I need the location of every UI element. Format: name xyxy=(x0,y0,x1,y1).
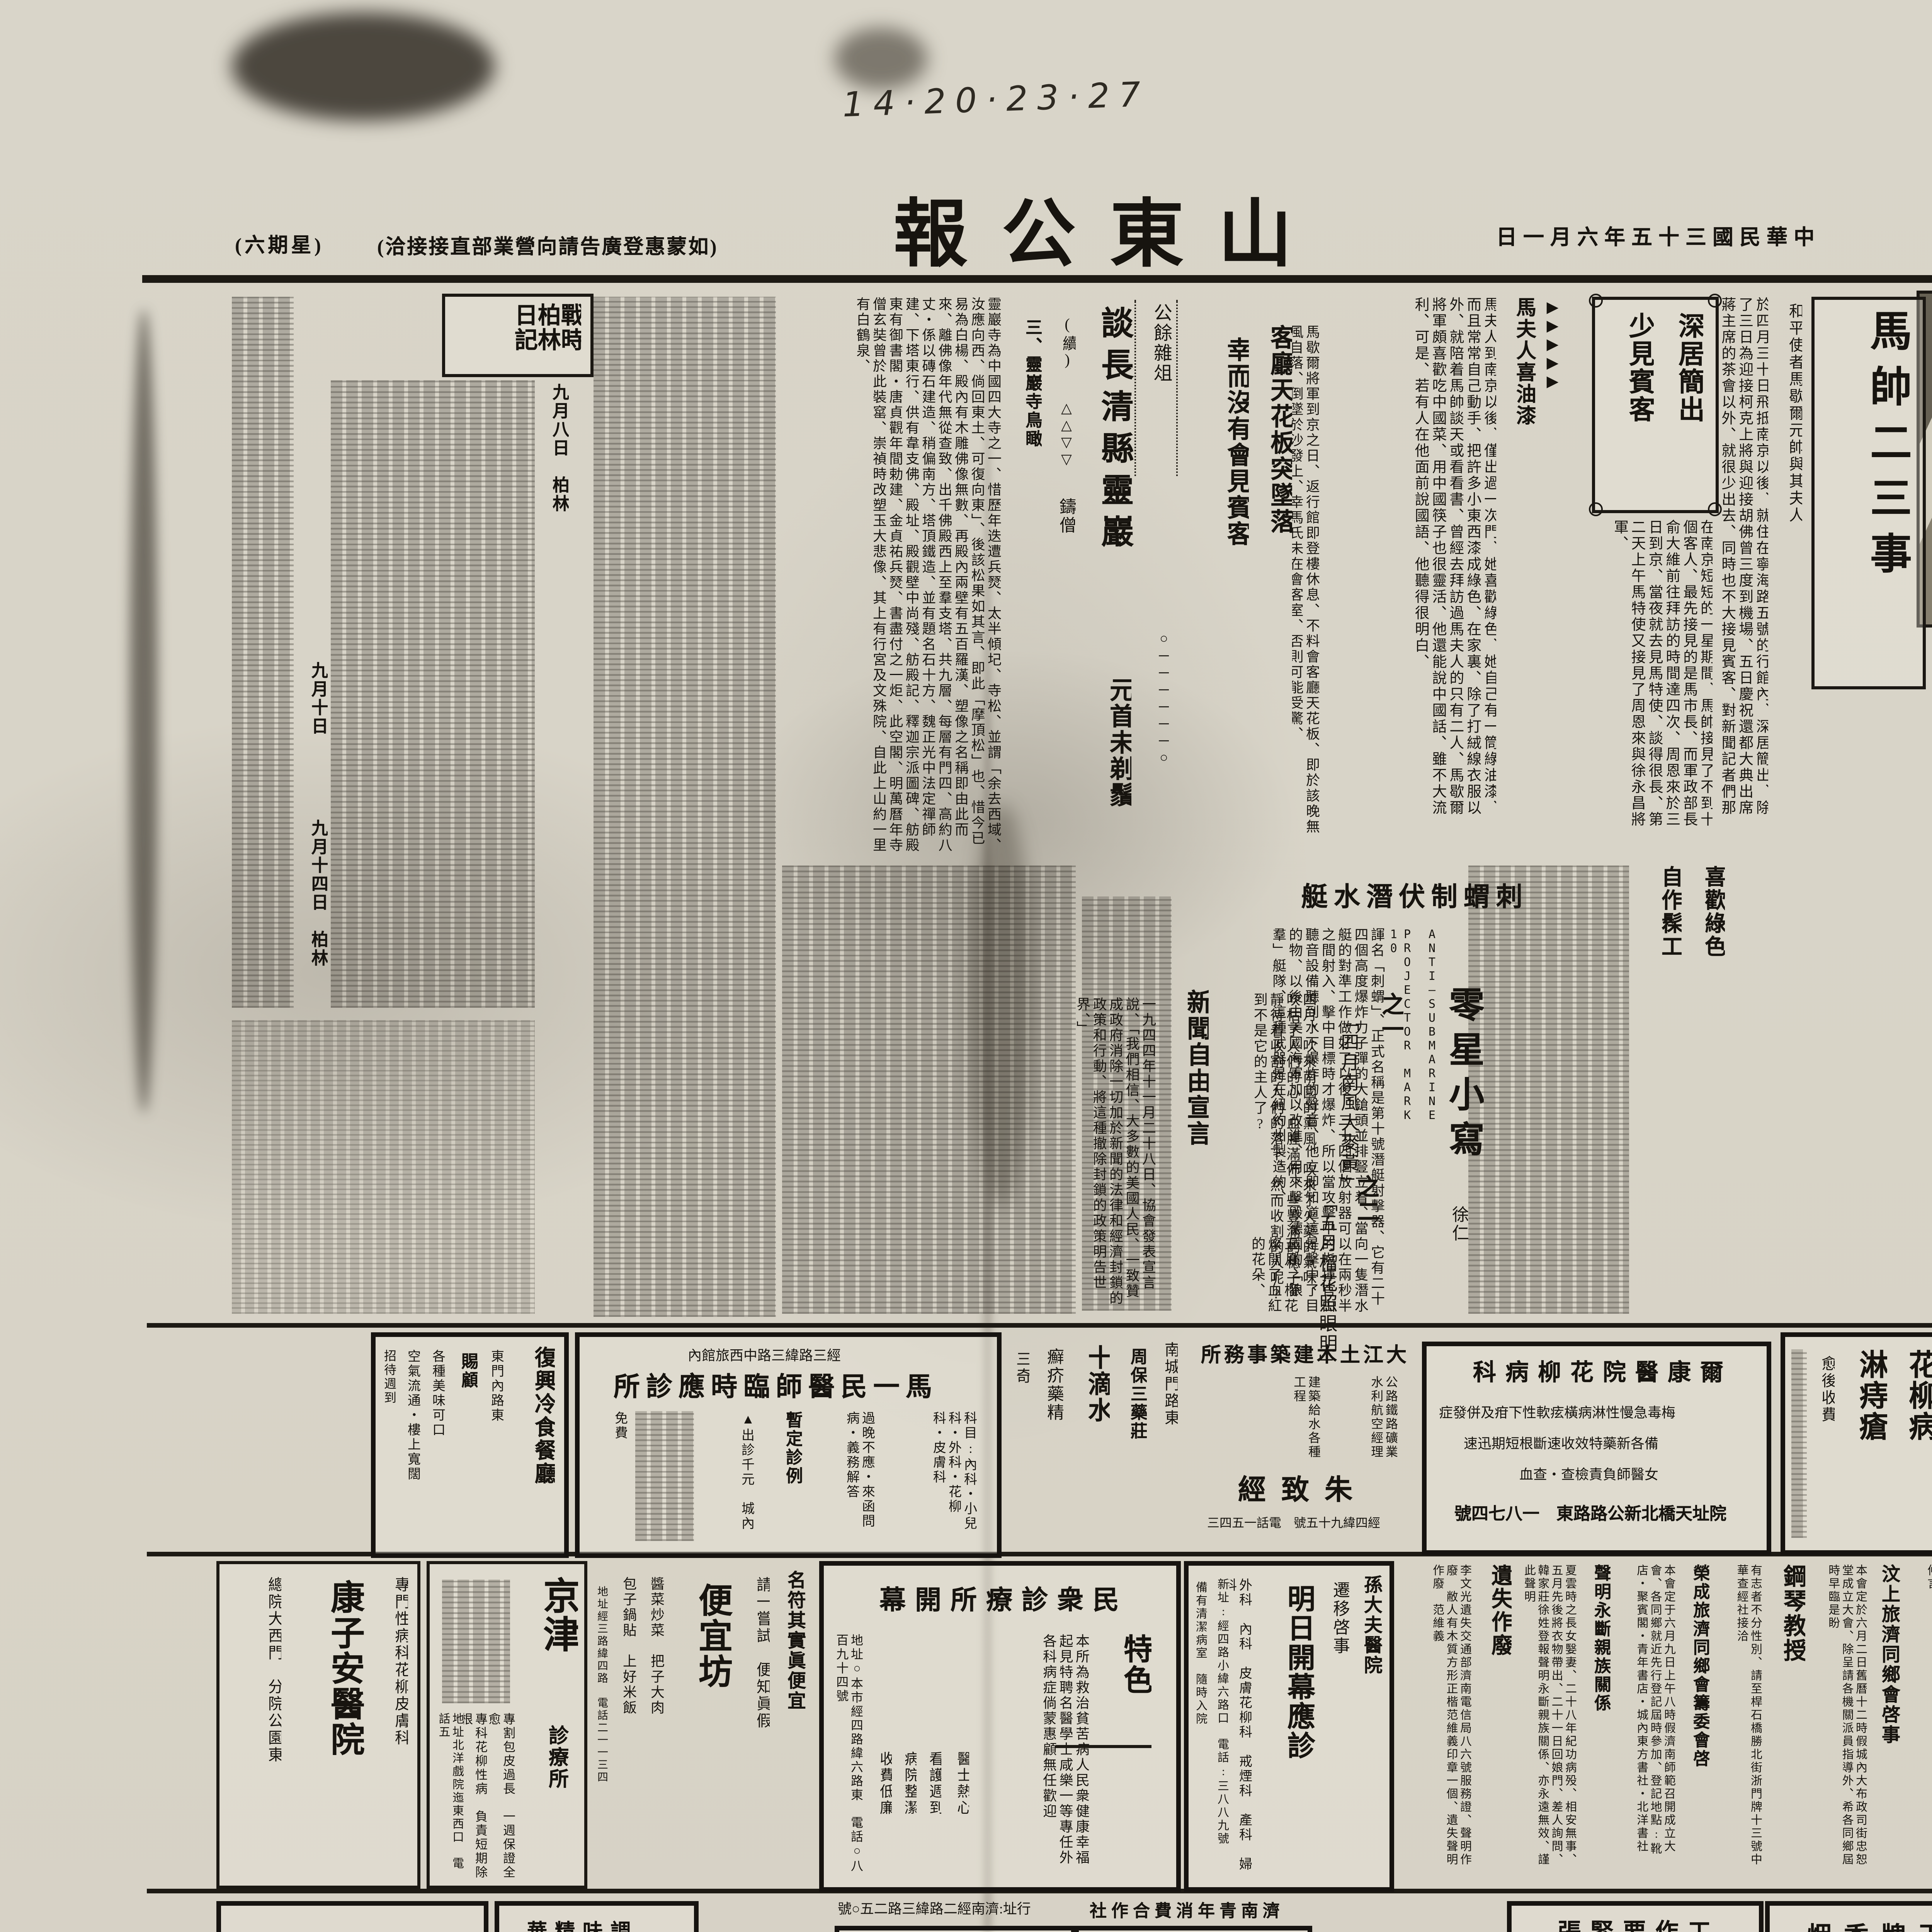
ad-kang-spec: 專門性病科花柳皮膚科 xyxy=(374,1577,408,1873)
ad-minzhong-tese: 特色 xyxy=(1096,1634,1151,1773)
headline-berlin-box: 戰時柏林日記 xyxy=(442,294,594,377)
ad-fuxing-line: 賜顧 xyxy=(450,1352,478,1538)
subhead-green-2: 自作髹工 xyxy=(1641,866,1682,1036)
lingxing-sec1: 之一 xyxy=(1366,992,1403,1070)
ad-mayimin: 內館旅西中路三緯路三經 所診應時臨師醫民一馬 科目:內科・小兒科・外科・花柳科・… xyxy=(575,1332,1002,1558)
corner-ring xyxy=(1589,502,1603,516)
ad-bank-wrap: 號○五二路三緯路二經南濟:址行 山東省銀行 手續簡捷 匯費低廉 營業要目:存款 … xyxy=(835,1898,1066,1932)
unreadable-text xyxy=(232,1020,535,1314)
ad-erkang-line: 血查・查檢責負師醫女 xyxy=(1519,1464,1751,1484)
classified-title: 遺失作廢 xyxy=(1475,1564,1512,1703)
ad-dajiang: 所務事築建木土江大 公路鐵路礦業水利航空經理 建築給水各種工程 經致朱 三四五一… xyxy=(1198,1332,1411,1549)
ad-byf-footer: 地址經三路緯四路 電話二一一三四 xyxy=(590,1586,609,1873)
ad-bolan: 必需品 波蘭 是名子 xyxy=(216,1901,488,1932)
ad-mayimin-loc: 內館旅西中路三緯路三經 xyxy=(688,1345,841,1365)
ad-byf-slogan1: 名符其實眞便宜 xyxy=(773,1570,807,1873)
ad-shywong-cigarettes: 烟香牌王獅 。香烟芬芳。歡迎品嘗。 。經理推銷。利益優厚。 SHY WONG C… xyxy=(1765,1901,1932,1932)
ad-zhou-product1: 十滴水 xyxy=(1066,1345,1110,1530)
date-line: 日一月六年五十三國民華中 xyxy=(1496,219,1821,250)
classifieds-strip: 尋人 擬子世芳世芬月去秋失蹤、倘蒙善士友好勸送來家或知送信者必重酬謝 住濟南院東… xyxy=(1394,1561,1932,1883)
ad-honglong: 華精味調 良純料原 紅龍醬油 人人必需 家家必備 場造釀 八〇二五二話電 xyxy=(495,1901,699,1932)
unreadable-text xyxy=(331,380,535,1008)
classified-body: 夏雲時之長女嫛妻、二十八年紀功病殁、相安無事、五月先後將衣物帶出、二十一日回娘門… xyxy=(1515,1564,1577,1873)
subhead-ma-paint: 馬夫人喜油漆 xyxy=(1502,297,1536,513)
ad-erkang-line: 速迅期短根斷速收效特藥新各備 xyxy=(1464,1433,1757,1453)
ad-bank-addr: 號○五二路三緯路二經南濟:址行 xyxy=(838,1898,1031,1918)
ad-mayimin-item: 過晚不應・來函問病・義務解答 xyxy=(811,1411,876,1541)
ad-minzhong: 幕開所療診衆民 特色 本所為救治貧苦病人民衆健康幸福起見特聘名醫學士咸樂一等專任… xyxy=(819,1561,1181,1892)
ad-jingjin: 京津 診療所 專割包皮過長 一週保證全愈 專科花柳性病 負責短期除根 地址北洋戲… xyxy=(427,1561,587,1889)
ma-body-a: 於四月三十日飛抵南京以後、就住在寧海路五號的行館內、深居簡出、除了三日為迎接柯克… xyxy=(1719,297,1768,832)
weekday-label: (六期星) xyxy=(235,229,324,258)
ad-sun-depts: 外科 內科 皮膚花柳科 戒煙科 產科 婦科 xyxy=(1229,1578,1253,1881)
ad-jingjin-line: 專科花柳性病 負責短期除根 xyxy=(464,1713,488,1879)
ad-minzhong-body: 本所為救治貧苦病人民衆健康幸福起見特聘名醫學士咸樂一等專任外各科病症倘蒙惠顧無任… xyxy=(972,1634,1090,1869)
newspaper-scan: 14·20·23·27 (六期星) (洽接接直部業營向請告廣登惠蒙如) 報公東山… xyxy=(0,0,1932,1932)
ad-jingjin-line: 地址北洋戲院迤東西口 電話五 xyxy=(439,1713,464,1879)
ad-jingjin-name2: 診療所 xyxy=(522,1725,569,1873)
ad-fuxing-line: 各種美味可口 xyxy=(422,1349,447,1535)
subhead-line: 深居簡出 xyxy=(1657,312,1703,498)
ad-venereal-big2: 淋痔瘡 xyxy=(1838,1349,1887,1538)
ad-kang-name: 康子安醫院 xyxy=(291,1580,365,1873)
headline-yuanshou: 元首未剃鬚 xyxy=(1085,677,1131,878)
ad-mayimin-subjects: 科目:內科・小兒科・外科・花柳科・皮膚科 xyxy=(910,1411,978,1541)
ad-byf-name: 便宜坊 xyxy=(665,1583,733,1861)
dumbbell-divider: ○──────○ xyxy=(1147,631,1172,847)
ad-bianyifang: 名符其實眞便宜 請一嘗試 便知眞假 便宜坊 醬菜炒菜 把子大肉 包子鍋貼 上好米… xyxy=(590,1561,810,1883)
unreadable-text xyxy=(1791,1349,1807,1538)
corner-ring xyxy=(1589,294,1603,308)
ma-intro: 和平使者馬歇爾元帥與其夫人 xyxy=(1771,303,1802,767)
headline-press-freedom: 新聞自由宣言 xyxy=(1165,989,1209,1221)
berlin-date-2: 九月十日 xyxy=(297,662,328,801)
ad-fuxing-title: 復興冷食餐廳 xyxy=(512,1346,555,1544)
subhead-line: 少見賓客 xyxy=(1607,312,1654,498)
ad-minzhong-f: 醫士熱心 xyxy=(941,1751,969,1875)
ad-dajiang-name: 經致朱 xyxy=(1238,1468,1368,1509)
ad-dajiang-services: 公路鐵路礦業水利航空經理 xyxy=(1331,1376,1399,1468)
ad-dajiang-footer: 三四五一話電 號五十九緯四經 xyxy=(1207,1515,1380,1532)
ink-stain xyxy=(232,12,495,121)
ad-minzhong-f: 看護週到 xyxy=(917,1751,941,1875)
headline-ceiling-1: 客廳天花板突墜落 xyxy=(1246,325,1292,680)
ad-notice: (洽接接直部業營向請告廣登惠蒙如) xyxy=(377,230,718,260)
ad-hl-t1: 華精味調 xyxy=(527,1915,638,1932)
ad-mayimin-title: 所診應時臨師醫民一馬 xyxy=(614,1365,938,1403)
ad-zhou-loc: 南城門路東 xyxy=(1150,1342,1178,1527)
unreadable-text xyxy=(232,297,294,1008)
ad-byf-menu1: 醬菜炒菜 把子大肉 xyxy=(637,1577,665,1870)
ad-venereal-note: 愈後收費 xyxy=(1810,1355,1835,1526)
ink-stain xyxy=(130,309,158,1113)
ma-body-a2: 在南京短短的一星期間、馬帥接見了不到十個客人、最先接見的是馬市長、而軍政部長俞大… xyxy=(1564,519,1713,828)
classified-title: 聲明永斷親族關係 xyxy=(1580,1564,1611,1873)
ad-fuxing-line: 東門內路東 xyxy=(481,1349,505,1535)
section-rule xyxy=(147,1323,1932,1327)
classified-title: 汶上旅濟同鄉會啓事 xyxy=(1870,1564,1901,1873)
ad-bank: 山東省銀行 手續簡捷 匯費低廉 營業要目:存款 放款 匯兌 通匯地點:青島 濰縣… xyxy=(835,1926,1076,1932)
ad-erkang-hospital: 科病柳花院醫康爾 症發併及疳下性軟痃橫病淋性慢急毒梅 速迅期短根斷速收效特藥新各… xyxy=(1422,1342,1771,1555)
ad-touxinliang: 張緊要作工 靜冷須腦頭 不怕天氣熱不畏汗流背 來杯銀星汽冷靜自爽神 透心涼 製造… xyxy=(1507,1901,1764,1932)
unreadable-text xyxy=(442,1580,510,1703)
subhead-box: 深居簡出 少見賓客 xyxy=(1592,297,1719,513)
masthead-title: 報公東山 xyxy=(893,173,1326,281)
ad-byf-slogan2: 請一嘗試 便知眞假 xyxy=(739,1577,770,1870)
headline-lingxing: 零星小寫 xyxy=(1425,986,1484,1187)
ad-sun-name: 孫大夫醫院 xyxy=(1349,1575,1383,1878)
ad-fuxing-restaurant: 復興冷食餐廳 東門內路東 賜顧 各種美味可口 空氣流通・樓上寬闊 招待週到 xyxy=(371,1332,569,1558)
ad-zhoubaosan: 南城門路東 周保三藥莊 十滴水 癬疥藥精 三奇 xyxy=(1002,1332,1184,1549)
lingxing-author: 徐仁 xyxy=(1437,1206,1468,1283)
subhead-green-1: 喜歡綠色 xyxy=(1685,866,1725,1036)
unreadable-text xyxy=(635,1411,694,1541)
ad-fuxing-line: 空氣流通・樓上寬闊 xyxy=(397,1349,422,1535)
classified-body: 擬子世芳世芬月去秋失蹤、倘蒙善士友好勸送來家或知送信者必重酬謝 住濟南院東大街新… xyxy=(1904,1564,1932,1873)
classified-body: 李文光遺失交通部濟南電信局八六號服務證、聲明作廢 敝人有木質方形正楷范維義印章一… xyxy=(1397,1564,1471,1873)
classified-title: 鋼琴教授 xyxy=(1765,1564,1805,1750)
ad-ysb-org: 社作合費消年青南濟 xyxy=(1090,1898,1284,1923)
ad-kangzian: 專門性病科花柳皮膚科 康子安醫院 總院大西門 分院公園東 xyxy=(216,1561,420,1889)
headline-hedgehog: 艇水潛伏制蝟刺 xyxy=(1301,875,1529,913)
ad-yinshibu-wrap: 社作合費消年青南濟 部食飲 努力社會服務 我們經濟飲食 精庖閩粵名菜 潔製歐美大… xyxy=(1074,1898,1303,1932)
triangle-marks: ▶▶▶▶▶ xyxy=(1539,300,1561,485)
ad-jingjin-line: 專割包皮過長 一週保證全愈 xyxy=(488,1713,516,1879)
ad-zhou-product2: 癬疥藥精 xyxy=(1032,1348,1063,1533)
ad-venereal-big1: 花柳病 xyxy=(1887,1349,1932,1538)
ad-zhou-shop: 周保三藥莊 xyxy=(1116,1348,1147,1533)
ad-dajiang-title: 所務事築建木土江大 xyxy=(1201,1338,1410,1368)
classified-body: 有志者不分性別、請至桿石橋勝北街浙門牌十三號中華查經社接洽 xyxy=(1713,1564,1762,1873)
lingyan-cont: (續) xyxy=(1048,317,1076,394)
lingyan-subhead: 三、靈巖寺鳥瞰 xyxy=(1008,318,1042,535)
ad-dajiang-services: 建築給水各種工程 xyxy=(1260,1376,1321,1468)
lingyan-author-marks: △△▽▽ xyxy=(1048,402,1076,495)
ma-body-d: 馬歇爾將軍到京之日、返行館即登樓休息、不料會客廳天花板、即於該晚無風自落、倒墜於… xyxy=(1292,325,1320,835)
ad-txl-top1: 張緊要作工 xyxy=(1558,1915,1720,1932)
ad-minzhong-title: 幕開所療診衆民 xyxy=(879,1578,1128,1617)
column-gongyuzazu: 公餘雜俎 xyxy=(1134,300,1178,476)
ad-shywong-title: 烟香牌王獅 xyxy=(1807,1915,1932,1932)
ad-erkang-footer: 號四七八一 東路路公新北橋天址院 xyxy=(1454,1501,1757,1526)
ad-erkang-line: 症發併及疳下性軟痃橫病淋性慢急毒梅 xyxy=(1439,1402,1754,1422)
ma-body-c: 馬夫人到南京以後、僅出過一次門、她喜歡綠色、她自己有一筒綠油漆、而且常常自己動手… xyxy=(1323,297,1496,832)
berlin-date-1: 九月八日 柏林 xyxy=(538,383,569,584)
ad-minzhong-footer: 地址○本市經四路緯六路東 電話○八百九十四號 xyxy=(833,1634,864,1878)
xujiabao-body: 夜、天上有幾叢暗的烟雲、許家堡在黑暗裏兀立着原野、荒涼而寂靜、遠處、一匹白馬馳着… xyxy=(1876,677,1932,1298)
headline-ma-shuai: 馬帥二三事 xyxy=(1811,297,1926,689)
ad-kang-branch: 總院大西門 分院公園東 xyxy=(244,1577,281,1873)
ad-sun-addr: 新址:經四路小緯六路口 電話:三八八九號 xyxy=(1207,1578,1229,1881)
ad-yinshibu: 部食飲 努力社會服務 我們經濟飲食 精庖閩粵名菜 潔製歐美大菜 特備新運客飯 美… xyxy=(1074,1926,1312,1932)
newspaper-page: 14·20·23·27 (六期星) (洽接接直部業營向請告廣登惠蒙如) 報公東山… xyxy=(0,0,1932,1932)
lingyan-body: 靈巖寺為中國四大寺之一、惜歷年迭遭兵燹、太半傾圮、寺松、並謂「余去西域、汝應向西… xyxy=(782,297,1002,853)
headline-ceiling-2: 幸而沒有會見賓客 xyxy=(1202,337,1249,692)
lingxing-sec2: 之二 xyxy=(1342,1175,1379,1252)
ad-minzhong-f: 病院整潔 xyxy=(892,1751,917,1875)
lingyan-author: 鑄僧 xyxy=(1048,498,1076,575)
headline-berlin: 戰時柏林日記 xyxy=(454,303,581,368)
ad-minzhong-f: 收費低廉 xyxy=(867,1751,892,1875)
masthead-rule xyxy=(142,275,1932,283)
ad-zhou-product3: 三奇 xyxy=(1008,1351,1029,1444)
ad-erkang-title: 科病柳花院醫康爾 xyxy=(1473,1355,1733,1388)
ad-fuxing-line: 招待週到 xyxy=(379,1349,397,1535)
classified-body: 本會定于六月九日上午八時假濟南師範召開成立大會、各同鄉就近先行登記屆時參加、登記… xyxy=(1614,1564,1675,1873)
ad-byf-menu2: 包子鍋貼 上好米飯 xyxy=(609,1577,637,1870)
press-body: 一九四四年十一月二十八日、協會發表宣言說、「我們相信、大多數的美國人民、一致贊成… xyxy=(1002,997,1156,1306)
ad-mayimin-item: 免費 xyxy=(604,1411,629,1541)
ad-jingjin-name: 京津 xyxy=(516,1577,578,1716)
unreadable-text xyxy=(594,297,776,1317)
ink-stain xyxy=(835,28,927,90)
inner-rule xyxy=(1056,1745,1151,1748)
ad-sun-big: 明日開幕應診 xyxy=(1253,1584,1315,1878)
ad-mayimin-item: 暫定診例 xyxy=(765,1411,802,1541)
classified-title: 榮成旅濟同鄉會籌委會啓 xyxy=(1679,1564,1709,1873)
ad-sundafu: 孫大夫醫院 遷移啓事 明日開幕應診 外科 內科 皮膚花柳科 戒煙科 產科 婦科 … xyxy=(1184,1561,1394,1892)
ad-sun-note: 備有清潔病室 隨時入院 xyxy=(1189,1581,1207,1875)
lingxing-sec2-body: 五月、榴花燦開了血紅的花朵、 xyxy=(1236,1236,1298,1314)
ad-sun-move: 遷移啓事 xyxy=(1321,1581,1349,1767)
classified-body: 本會定於六月二日舊曆十二時假城內大布政司街忠恕堂成立大會、除呈請各機關派員指導外… xyxy=(1808,1564,1867,1873)
unreadable-text xyxy=(1468,866,1629,1314)
berlin-date-3: 九月十四日 柏林 xyxy=(297,819,328,1020)
ad-venereal: 花柳病 淋痔瘡 愈後收費 xyxy=(1781,1332,1932,1555)
ad-mayimin-item: ▲出診千元 城內 xyxy=(700,1411,756,1541)
